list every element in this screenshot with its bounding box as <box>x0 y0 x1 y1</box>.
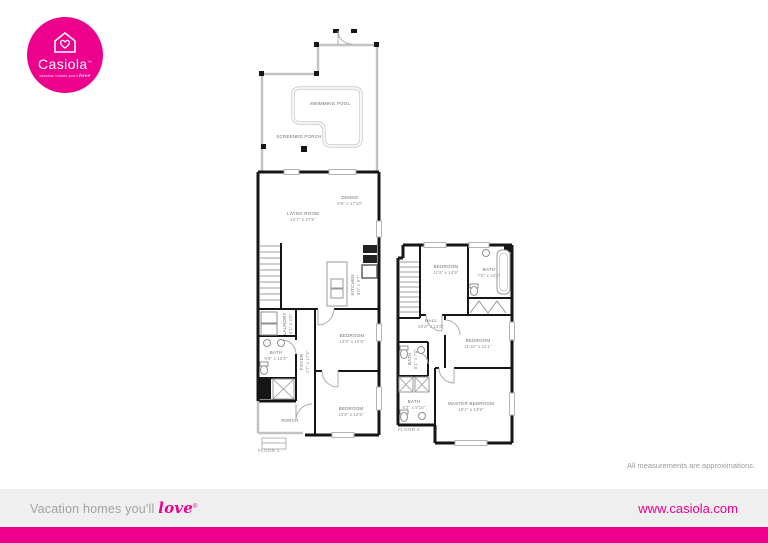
room-label-bedroom-front: BEDROOM 13'9" x 12'5" <box>324 333 380 345</box>
washer-dryer <box>261 312 277 335</box>
footer-tagline: Vacation homes you'll love® <box>30 499 198 517</box>
logo-trademark: ™ <box>88 59 92 64</box>
room-label-swimming-pool: SWIMMING POOL <box>302 101 358 107</box>
room-label-bath-small: BATH 8'1" x 7'0" <box>407 331 419 387</box>
room-label-laundry: LAUNDRY 5'1" x 4'0" <box>282 296 294 352</box>
room-label-foyer: FOYER 4'7" x 17'9" <box>299 334 311 390</box>
room-label-bedroom-back: BEDROOM 13'9" x 12'6" <box>323 406 379 418</box>
footer-accent-bar <box>0 527 768 543</box>
room-label-master-bedroom: MASTER BEDROOM 16'1" x 13'9" <box>443 401 499 413</box>
room-label-bath1: BATH 5'6" x 12'0" <box>248 350 304 362</box>
room-label-bath-lower: BATH 6'2" x 9'10" <box>386 399 442 411</box>
kitchen-island <box>327 262 347 306</box>
footer-band: Vacation homes you'll love® www.casiola.… <box>0 489 768 527</box>
floor2-caption: FLOOR 2 <box>398 427 420 432</box>
closet-doors <box>470 301 506 313</box>
pool-gate-door-arc <box>333 29 357 44</box>
room-label-bath-top: BATH 7'0" x 14'5" <box>461 267 517 279</box>
floor-plan-1 <box>258 29 382 449</box>
stairs-floor2 <box>399 262 419 312</box>
room-label-kitchen: KITCHEN 9'6" x 9'7" <box>350 257 362 313</box>
website-link[interactable]: www.casiola.com <box>638 501 738 516</box>
room-label-dining: DINING 9'6" x 17'10" <box>322 195 378 207</box>
room-label-porch: PORCH <box>262 418 318 424</box>
casiola-logo: Casiola™ vacation homes you'll love <box>27 17 103 93</box>
room-label-screened-porch: SCREENED PORCH <box>271 134 327 140</box>
room-label-bedroom-right: BEDROOM 11'10" x 11'1" <box>450 338 506 350</box>
footer-trademark: ® <box>193 504 198 510</box>
house-heart-icon <box>51 31 79 55</box>
kitchen-appliances <box>362 245 377 278</box>
logo-brand-text: Casiola™ <box>38 56 92 72</box>
floor1-caption: FLOOR 1 <box>258 448 280 453</box>
stairs-floor1 <box>259 246 280 300</box>
shower-floor1 <box>259 379 294 399</box>
measurements-disclaimer: All measurements are approximations. <box>627 461 755 470</box>
bath-lower-fixtures <box>400 410 426 422</box>
room-label-living-room: LIVING ROOM 13'7" x 27'5" <box>275 211 331 223</box>
flyer-page: { "brand": { "name": "Casiola", "tradema… <box>0 0 768 543</box>
room-label-hall: HALL 20'8" x 12'0" <box>403 318 459 330</box>
logo-tagline: vacation homes you'll love <box>39 73 90 79</box>
